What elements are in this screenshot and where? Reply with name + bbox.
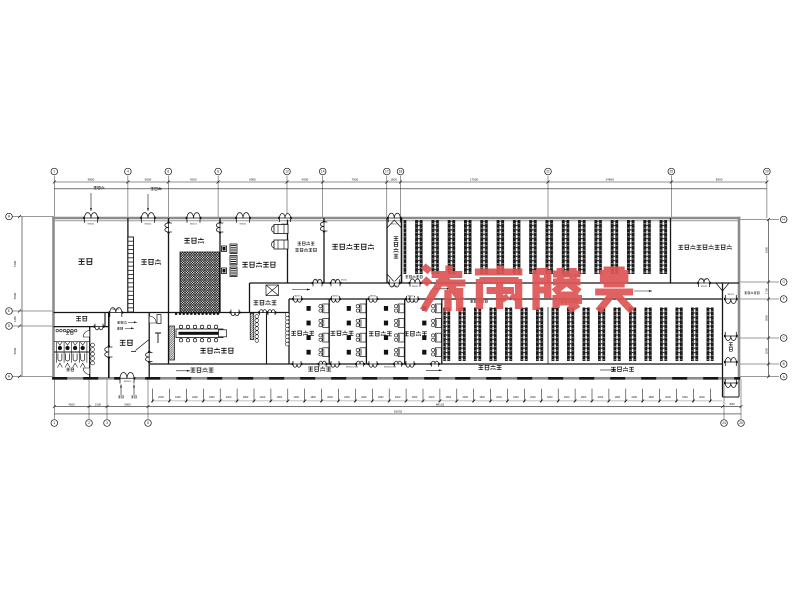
svg-text:8300: 8300 — [716, 178, 723, 182]
svg-text:M1521: M1521 — [701, 286, 708, 288]
svg-text:M1221: M1221 — [282, 223, 289, 225]
svg-text:7200: 7200 — [13, 260, 17, 267]
svg-text:2000: 2000 — [192, 396, 198, 399]
svg-text:2000: 2000 — [429, 396, 435, 399]
svg-text:2000: 2000 — [699, 396, 705, 399]
svg-text:2600: 2600 — [764, 347, 768, 354]
svg-text:17520: 17520 — [470, 178, 479, 182]
svg-text:2000: 2000 — [530, 396, 536, 399]
svg-text:17: 17 — [385, 170, 389, 174]
svg-text:2: 2 — [88, 421, 90, 425]
svg-text:M1521: M1521 — [701, 279, 708, 281]
svg-text:3900: 3900 — [764, 314, 768, 321]
svg-text:1700: 1700 — [764, 288, 768, 294]
svg-text:M1221: M1221 — [728, 294, 735, 296]
svg-text:1800: 1800 — [344, 396, 350, 399]
svg-text:1800: 1800 — [581, 396, 587, 399]
svg-text:4: 4 — [127, 170, 129, 174]
svg-text:5000: 5000 — [124, 402, 131, 406]
svg-text:25: 25 — [670, 170, 674, 174]
svg-text:1460: 1460 — [13, 316, 17, 322]
svg-text:M1221: M1221 — [341, 280, 348, 282]
svg-text:E: E — [8, 309, 10, 313]
svg-text:M1221: M1221 — [391, 286, 398, 288]
svg-text:1800: 1800 — [615, 396, 621, 399]
svg-text:4200: 4200 — [190, 178, 197, 182]
svg-text:2000: 2000 — [395, 396, 401, 399]
svg-text:M0921X2100: M0921X2100 — [384, 366, 397, 368]
svg-text:2000: 2000 — [496, 396, 502, 399]
svg-text:M1021: M1021 — [412, 286, 419, 288]
svg-text:1: 1 — [53, 421, 55, 425]
svg-text:M1521: M1521 — [88, 223, 95, 225]
svg-text:12: 12 — [285, 170, 289, 174]
svg-text:1800: 1800 — [513, 396, 519, 399]
svg-text:2000: 2000 — [631, 396, 637, 399]
svg-text:14: 14 — [321, 170, 325, 174]
svg-text:1: 1 — [53, 170, 55, 174]
svg-text:2000: 2000 — [327, 396, 333, 399]
svg-text:2000: 2000 — [361, 396, 367, 399]
svg-text:B: B — [783, 362, 785, 366]
svg-text:18: 18 — [399, 170, 403, 174]
svg-text:M1521: M1521 — [145, 223, 152, 225]
svg-text:8: 8 — [217, 170, 219, 174]
svg-text:M1521: M1521 — [190, 223, 197, 225]
svg-text:1600: 1600 — [390, 178, 397, 182]
svg-text:2000: 2000 — [226, 396, 232, 399]
svg-text:4500: 4500 — [302, 178, 309, 182]
svg-text:9800: 9800 — [88, 178, 95, 182]
svg-text:2000: 2000 — [665, 396, 671, 399]
svg-text:2000: 2000 — [462, 396, 468, 399]
svg-text:1800: 1800 — [446, 396, 452, 399]
svg-text:2000: 2000 — [564, 396, 570, 399]
svg-text:1800: 1800 — [243, 396, 249, 399]
svg-text:M0921: M0921 — [370, 296, 377, 298]
svg-text:1800: 1800 — [682, 396, 688, 399]
svg-text:3: 3 — [106, 421, 108, 425]
svg-text:6900: 6900 — [249, 178, 256, 182]
svg-text:2000: 2000 — [158, 396, 164, 399]
svg-text:3062: 3062 — [729, 403, 735, 406]
svg-text:M0921X2100: M0921X2100 — [346, 366, 359, 368]
svg-text:F: F — [783, 297, 785, 301]
svg-text:2000: 2000 — [293, 396, 299, 399]
svg-text:M1221: M1221 — [314, 280, 321, 282]
svg-text:14600: 14600 — [606, 178, 615, 182]
svg-text:1800: 1800 — [479, 396, 485, 399]
svg-text:1800: 1800 — [175, 396, 181, 399]
svg-text:68102: 68102 — [436, 402, 445, 406]
svg-text:1800: 1800 — [378, 396, 384, 399]
svg-text:M0921: M0921 — [332, 296, 339, 298]
svg-text:21: 21 — [546, 170, 550, 174]
svg-text:5000: 5000 — [145, 178, 152, 182]
svg-text:M1821: M1821 — [124, 381, 131, 383]
svg-text:1800: 1800 — [310, 396, 316, 399]
svg-text:2100: 2100 — [95, 402, 102, 406]
svg-text:5060: 5060 — [13, 347, 17, 354]
svg-text:M0921: M0921 — [407, 296, 414, 298]
svg-text:6300: 6300 — [764, 246, 768, 253]
svg-text:6500: 6500 — [13, 292, 17, 299]
svg-text:M1521: M1521 — [240, 223, 247, 225]
svg-text:29: 29 — [765, 170, 769, 174]
svg-text:1800: 1800 — [547, 396, 553, 399]
svg-text:2000: 2000 — [260, 396, 266, 399]
svg-text:25: 25 — [739, 421, 743, 425]
svg-text:M1521: M1521 — [112, 309, 119, 311]
svg-text:1800: 1800 — [277, 396, 283, 399]
svg-text:1800: 1800 — [209, 396, 215, 399]
svg-text:4300: 4300 — [68, 402, 75, 406]
svg-text:24: 24 — [722, 421, 726, 425]
svg-text:M0921: M0921 — [294, 296, 301, 298]
svg-text:1800: 1800 — [412, 396, 418, 399]
svg-text:81932: 81932 — [394, 410, 403, 414]
svg-text:2000: 2000 — [598, 396, 604, 399]
svg-text:5: 5 — [147, 421, 149, 425]
svg-text:1800: 1800 — [648, 396, 654, 399]
svg-text:6: 6 — [167, 170, 169, 174]
svg-text:M1221: M1221 — [332, 280, 339, 282]
svg-text:7500: 7500 — [351, 178, 358, 182]
